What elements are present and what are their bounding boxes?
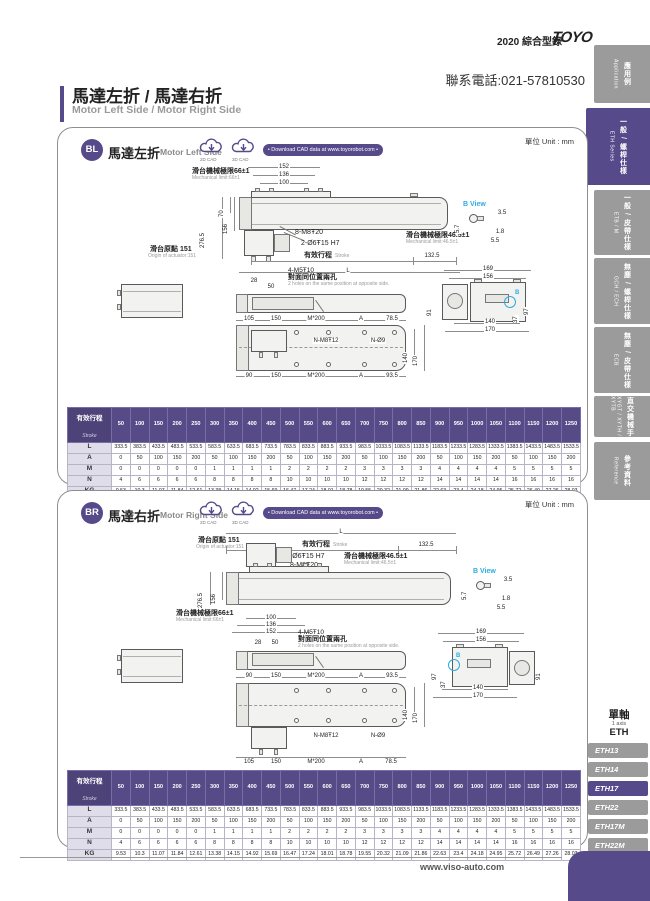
table-cell: 200	[337, 816, 356, 827]
motor-unit-tab	[117, 669, 121, 675]
stroke-header-cell: 有效行程Stroke	[68, 771, 112, 806]
table-cell: 0	[112, 816, 131, 827]
slider-lug	[255, 188, 260, 192]
table-cell: 10	[299, 475, 318, 486]
panel-title-zh: 馬達右折	[108, 506, 160, 525]
stroke-table-br: 有效行程Stroke501001502002503003504004505005…	[67, 770, 581, 861]
dim-row-b-0: 105	[243, 759, 255, 765]
stroke-value-header: 350	[224, 771, 243, 806]
nav-group-en: 1 axis	[588, 721, 650, 728]
cad-3d-label: 3D CAD	[232, 520, 249, 525]
stroke-value-header: 750	[374, 771, 393, 806]
dim-276: 276.5	[198, 592, 204, 609]
stroke-value-header: 550	[299, 408, 318, 443]
tap-n-callout: N-M8Ŧ12	[312, 338, 339, 344]
stroke-value-header: 1000	[468, 408, 487, 443]
table-cell: 14	[430, 475, 449, 486]
stroke-value-header: 500	[280, 408, 299, 443]
model-nav: 單軸 1 axis ETH ETH13ETH14ETH17ETH22ETH17M…	[588, 710, 650, 857]
dim-line	[222, 572, 223, 600]
row-label: M	[68, 827, 112, 838]
table-cell: 2	[337, 464, 356, 475]
table-cell: 6	[187, 475, 206, 486]
table-cell: 12	[355, 838, 374, 849]
sidebar-tab-zh: 參考資料	[622, 455, 632, 487]
stroke-value-header: 700	[355, 408, 374, 443]
dim-136: 136	[265, 622, 277, 628]
table-cell: 0	[168, 827, 187, 838]
table-cell: 1	[243, 827, 262, 838]
dim-156-end: 156	[475, 637, 487, 643]
table-cell: 8	[205, 475, 224, 486]
stroke-value-header: 550	[299, 771, 318, 806]
stroke-value-header: 100	[130, 408, 149, 443]
table-cell: 150	[393, 816, 412, 827]
motor-unit-line	[123, 311, 181, 312]
stroke-value-header: 250	[187, 771, 206, 806]
table-cell: 1	[262, 464, 281, 475]
dim-5-5: 5.5	[490, 238, 500, 244]
stroke-value-header: 650	[337, 771, 356, 806]
drill-n-callout: N-Ø9	[370, 338, 386, 344]
table-cell: 26.49	[524, 849, 543, 860]
body-rail-line	[241, 203, 441, 204]
table-cell: 50	[355, 453, 374, 464]
table-cell: 16	[543, 475, 562, 486]
table-cell: 1	[243, 464, 262, 475]
table-cell: 150	[168, 816, 187, 827]
dim-row-b-2: M*200	[306, 373, 325, 379]
sidebar-tab-5[interactable]: 無塵 / 皮帶仕樣ECB	[594, 327, 650, 393]
dim-140-end: 140	[484, 319, 496, 325]
sidebar-tab-zh: 應用例	[622, 62, 632, 86]
stroke-value-header: 200	[168, 408, 187, 443]
table-cell: 14	[449, 475, 468, 486]
table-cell: 683.5	[243, 442, 262, 453]
table-cell: 533.5	[187, 442, 206, 453]
table-cell: 3	[374, 827, 393, 838]
table-cell: 1533.5	[562, 805, 581, 816]
strip-cap	[236, 294, 248, 313]
sidebar-tab-6[interactable]: 直交機械手XYGT / XYTH / XYTB	[594, 396, 650, 437]
nav-item-eth22[interactable]: ETH22	[588, 800, 648, 815]
stroke-value-header: 800	[393, 771, 412, 806]
dim-row-b-3: A	[358, 759, 364, 765]
stroke-value-header: 50	[112, 771, 131, 806]
body-rail-line	[241, 224, 441, 225]
row-label: N	[68, 838, 112, 849]
table-cell: 27.26	[543, 849, 562, 860]
dim-5-7: 5.7	[462, 591, 468, 601]
table-cell: 16	[562, 475, 581, 486]
table-cell: 4	[430, 827, 449, 838]
table-cell: 16	[543, 838, 562, 849]
body-rail-line	[228, 578, 444, 579]
stroke-value-header: 450	[262, 771, 281, 806]
table-cell: 1033.5	[374, 805, 393, 816]
hole-marker	[294, 330, 299, 335]
table-cell: 200	[412, 453, 431, 464]
table-cell: 933.5	[337, 805, 356, 816]
table-cell: 5	[543, 827, 562, 838]
cad-3d-download-icon[interactable]	[230, 137, 257, 156]
table-cell: 14	[468, 838, 487, 849]
table-cell: 50	[355, 816, 374, 827]
hole-marker	[294, 718, 299, 723]
unit-label: 單位 Unit : mm	[525, 499, 574, 510]
stroke-zh: 有效行程	[302, 541, 330, 549]
table-cell: 3	[412, 827, 431, 838]
table-cell: 150	[543, 453, 562, 464]
download-cad-button[interactable]: • Download CAD data at www.toyorobot.com…	[263, 507, 383, 519]
dim-1-8: 1.8	[495, 229, 505, 235]
panel-motor-right: BR 馬達右折 Motor Right Side 2D CAD 3D CAD •…	[57, 490, 588, 848]
table-cell: 100	[449, 816, 468, 827]
table-cell: 9.53	[112, 849, 131, 860]
sidebar-tab-4[interactable]: 無塵 / 螺桿仕樣GCH / ECH	[594, 258, 650, 324]
dim-row-a-3: A	[358, 316, 364, 322]
stroke-value-header: 200	[168, 771, 187, 806]
dim-136: 136	[278, 172, 290, 178]
table-cell: 633.5	[224, 442, 243, 453]
table-cell: 8	[262, 838, 281, 849]
hole-marker	[392, 362, 397, 367]
sidebar-tab-en: GCH / ECH	[613, 276, 619, 306]
sidebar-tab-zh: 一般 / 螺桿仕樣	[618, 118, 628, 175]
hole-marker	[362, 718, 367, 723]
table-cell: 15.69	[262, 849, 281, 860]
table-cell: 200	[487, 453, 506, 464]
end-view-nameplate	[467, 659, 491, 668]
dim-line	[424, 683, 425, 727]
dim-row-a-4: 78.5	[385, 316, 399, 322]
hole-marker	[362, 362, 367, 367]
b-view-title: B View	[473, 568, 496, 576]
sidebar-tab-zh: 一般 / 皮帶仕樣	[622, 194, 632, 251]
table-cell: 150	[468, 816, 487, 827]
nav-item-eth14[interactable]: ETH14	[588, 762, 648, 777]
dim-97: 97	[524, 307, 530, 316]
table-cell: 1483.5	[543, 442, 562, 453]
table-cell: 100	[374, 816, 393, 827]
row-label: L	[68, 442, 112, 453]
table-cell: 12	[412, 838, 431, 849]
row-label: A	[68, 453, 112, 464]
table-cell: 50	[430, 453, 449, 464]
table-cell: 13.38	[205, 849, 224, 860]
sidebar-tab-en: XYGT / XYTH / XYTB	[610, 396, 622, 437]
table-cell: 1233.5	[449, 442, 468, 453]
row-label: L	[68, 805, 112, 816]
table-cell: 16.47	[280, 849, 299, 860]
dim-140-end: 140	[472, 685, 484, 691]
table-cell: 1433.5	[524, 805, 543, 816]
row-label: KG	[68, 849, 112, 860]
motor-foot	[274, 352, 278, 358]
sidebar-tab-2[interactable]: 一般 / 螺桿仕樣ETH Series	[586, 108, 650, 185]
dim-170-end: 170	[484, 327, 496, 333]
nav-items: ETH13ETH14ETH17ETH22ETH17METH22M	[588, 743, 650, 853]
dim-28: 28	[254, 640, 263, 646]
table-cell: 10	[337, 838, 356, 849]
nav-group-code: ETH	[588, 727, 650, 738]
table-cell: 21.09	[393, 849, 412, 860]
table-cell: 433.5	[149, 442, 168, 453]
dim-91: 91	[427, 308, 433, 317]
table-cell: 6	[130, 838, 149, 849]
stroke-value-header: 50	[112, 408, 131, 443]
table-cell: 6	[187, 838, 206, 849]
table-cell: 1333.5	[487, 805, 506, 816]
stroke-en: Stroke	[335, 254, 349, 260]
motor-foot	[259, 749, 263, 755]
table-cell: 18.01	[318, 849, 337, 860]
dim-line	[230, 197, 231, 213]
row-label: M	[68, 464, 112, 475]
dim-50: 50	[267, 284, 276, 290]
mech-limit-66-en: Mechanical limit:66±1	[192, 176, 240, 182]
nav-item-eth13[interactable]: ETH13	[588, 743, 648, 758]
table-cell: 2	[280, 464, 299, 475]
cad-3d-label: 3D CAD	[232, 157, 249, 162]
table-cell: 0	[187, 464, 206, 475]
b-marker-circle	[448, 659, 460, 671]
sidebar-tab-en: ETB / M	[613, 212, 619, 234]
dim-169: 169	[475, 629, 487, 635]
table-cell: 100	[299, 816, 318, 827]
table-cell: 933.5	[337, 442, 356, 453]
table-cell: 1	[205, 464, 224, 475]
table-cell: 1283.5	[468, 805, 487, 816]
table-cell: 783.5	[280, 442, 299, 453]
dim-152: 152	[265, 629, 277, 635]
footer-corner-block	[568, 851, 650, 901]
table-cell: 14	[430, 838, 449, 849]
stroke-value-header: 250	[187, 408, 206, 443]
dim-line	[234, 197, 235, 231]
sidebar-tab-en: ETH Series	[609, 131, 615, 162]
hole-marker	[362, 330, 367, 335]
table-cell: 17.24	[299, 849, 318, 860]
motor-unit-view	[121, 284, 183, 318]
sidebar-tab-1[interactable]: 應用例Application	[594, 45, 650, 103]
dim-132-5: 132.5	[423, 253, 440, 259]
table-cell: 583.5	[205, 442, 224, 453]
table-cell: 200	[187, 453, 206, 464]
table-cell: 5	[562, 827, 581, 838]
panel-motor-left: BL 馬達左折 Motor Left Side 2D CAD 3D CAD • …	[57, 127, 588, 485]
cad-3d-download-icon[interactable]	[230, 500, 257, 519]
table-cell: 14	[449, 838, 468, 849]
end-cap	[226, 572, 239, 605]
stroke-value-header: 350	[224, 408, 243, 443]
dim-row-a-1: 150	[270, 673, 282, 679]
footer-website[interactable]: www.viso-auto.com	[420, 862, 504, 872]
table-cell: 10	[280, 475, 299, 486]
table-cell: 683.5	[243, 805, 262, 816]
cad-2d-download-icon[interactable]	[198, 500, 225, 519]
table-cell: 733.5	[262, 805, 281, 816]
strip-slider	[252, 297, 314, 310]
table-cell: 4	[487, 827, 506, 838]
stroke-value-header: 1200	[543, 408, 562, 443]
stroke-value-header: 450	[262, 408, 281, 443]
table-cell: 16	[505, 838, 524, 849]
table-cell: 10.3	[130, 849, 149, 860]
table-cell: 4	[112, 838, 131, 849]
table-cell: 150	[543, 816, 562, 827]
stroke-value-header: 1000	[468, 771, 487, 806]
nav-item-eth17[interactable]: ETH17	[588, 781, 648, 796]
table-cell: 0	[112, 453, 131, 464]
dim-170-top: 170	[413, 355, 419, 367]
dim-170-end: 170	[472, 693, 484, 699]
table-cell: 12	[412, 475, 431, 486]
stroke-value-header: 750	[374, 408, 393, 443]
slider-lug	[303, 563, 308, 567]
table-cell: 200	[412, 816, 431, 827]
sidebar-tab-zh: 無塵 / 皮帶仕樣	[622, 332, 632, 389]
table-cell: 6	[168, 475, 187, 486]
table-cell: 16	[562, 838, 581, 849]
hole-marker	[392, 330, 397, 335]
nav-group-zh: 單軸	[588, 710, 650, 721]
motor-unit-tab	[117, 655, 121, 661]
table-cell: 6	[168, 838, 187, 849]
table-cell: 1133.5	[412, 442, 431, 453]
mech-limit-46-en: Mechanical limit:46.5±1	[406, 240, 458, 246]
table-cell: 50	[280, 453, 299, 464]
tap-n-callout: N-M8Ŧ12	[312, 733, 339, 739]
table-cell: 1133.5	[412, 805, 431, 816]
table-cell: 1233.5	[449, 805, 468, 816]
stroke-value-header: 850	[412, 771, 431, 806]
table-cell: 0	[149, 464, 168, 475]
table-cell: 4	[468, 827, 487, 838]
dim-tick	[456, 546, 457, 554]
table-cell: 21.86	[412, 849, 431, 860]
table-cell: 833.5	[299, 805, 318, 816]
sidebar-tab-7[interactable]: 參考資料Reference	[594, 442, 650, 500]
strip-cap	[236, 651, 248, 670]
page-subtitle: Motor Left Side / Motor Right Side	[72, 104, 241, 116]
table-cell: 0	[130, 464, 149, 475]
nav-item-eth17m[interactable]: ETH17M	[588, 819, 648, 834]
slider-lug	[317, 563, 322, 567]
stroke-value-header: 400	[243, 771, 262, 806]
stroke-value-header: 850	[412, 408, 431, 443]
dim-tick	[251, 257, 252, 265]
download-cad-button[interactable]: • Download CAD data at www.toyorobot.com…	[263, 144, 383, 156]
table-cell: 16	[524, 475, 543, 486]
table-cell: 10	[337, 475, 356, 486]
end-view-motor-circle	[447, 293, 463, 309]
dim-tick	[226, 546, 227, 554]
table-cell: 50	[430, 816, 449, 827]
b-view-detail	[477, 216, 484, 221]
gearbox-block	[274, 234, 290, 252]
dim-row-b-0: 90	[245, 373, 254, 379]
stroke-value-header: 900	[430, 771, 449, 806]
table-cell: 10	[280, 838, 299, 849]
table-cell: 6	[149, 838, 168, 849]
actuator-body-side	[239, 197, 448, 230]
motor-unit-view	[121, 649, 183, 683]
cad-2d-download-icon[interactable]	[198, 137, 225, 156]
dim-row-a-0: 90	[245, 673, 254, 679]
table-cell: 150	[318, 816, 337, 827]
table-cell: 333.5	[112, 805, 131, 816]
panel-code-badge: BR	[81, 502, 103, 524]
table-cell: 16	[524, 838, 543, 849]
table-cell: 833.5	[299, 442, 318, 453]
slider-lug	[304, 188, 309, 192]
table-cell: 983.5	[355, 805, 374, 816]
sidebar-tab-en: ECB	[613, 354, 619, 366]
table-cell: 3	[374, 464, 393, 475]
table-cell: 1483.5	[543, 805, 562, 816]
stroke-value-header: 300	[205, 771, 224, 806]
stroke-value-header: 950	[449, 408, 468, 443]
table-cell: 0	[112, 464, 131, 475]
tap-callout: 8-M8Ŧ20	[295, 229, 323, 237]
motor-block	[244, 230, 274, 256]
dim-156-end: 156	[482, 274, 494, 280]
table-cell: 10	[299, 838, 318, 849]
table-cell: 1	[205, 827, 224, 838]
table-cell: 200	[262, 453, 281, 464]
motor-unit-tab	[117, 290, 121, 296]
table-cell: 100	[149, 453, 168, 464]
sidebar-tab-3[interactable]: 一般 / 皮帶仕樣ETB / M	[594, 190, 650, 255]
motor-top-block	[251, 727, 287, 749]
table-cell: 1383.5	[505, 442, 524, 453]
table-cell: 150	[468, 453, 487, 464]
motor-unit-tab	[117, 304, 121, 310]
table-cell: 100	[149, 816, 168, 827]
slider-lug	[253, 563, 258, 567]
table-cell: 1	[262, 827, 281, 838]
hole-marker	[326, 688, 331, 693]
end-cap	[239, 197, 252, 230]
table-cell: 533.5	[187, 805, 206, 816]
table-cell: 8	[205, 838, 224, 849]
dim-276: 276.5	[200, 232, 206, 249]
table-cell: 2	[318, 464, 337, 475]
table-cell: 12	[355, 475, 374, 486]
table-cell: 483.5	[168, 442, 187, 453]
table-cell: 0	[187, 827, 206, 838]
origin-en: Origin of actuator:151	[148, 254, 196, 260]
table-cell: 12	[374, 838, 393, 849]
table-cell: 1533.5	[562, 442, 581, 453]
dim-140-top: 140	[403, 352, 409, 364]
dim-91: 91	[536, 672, 542, 681]
table-cell: 11.84	[168, 849, 187, 860]
slider-plate	[251, 191, 331, 198]
table-cell: 1083.5	[393, 442, 412, 453]
row-label: A	[68, 816, 112, 827]
dim-tick	[413, 257, 414, 265]
stroke-value-header: 650	[337, 408, 356, 443]
table-cell: 14.92	[243, 849, 262, 860]
table-cell: 50	[130, 816, 149, 827]
dim-row-a-4: 93.5	[385, 673, 399, 679]
table-cell: 633.5	[224, 805, 243, 816]
dim-3-5: 3.5	[497, 210, 507, 216]
table-cell: 1383.5	[505, 805, 524, 816]
dim-97: 97	[432, 672, 438, 681]
